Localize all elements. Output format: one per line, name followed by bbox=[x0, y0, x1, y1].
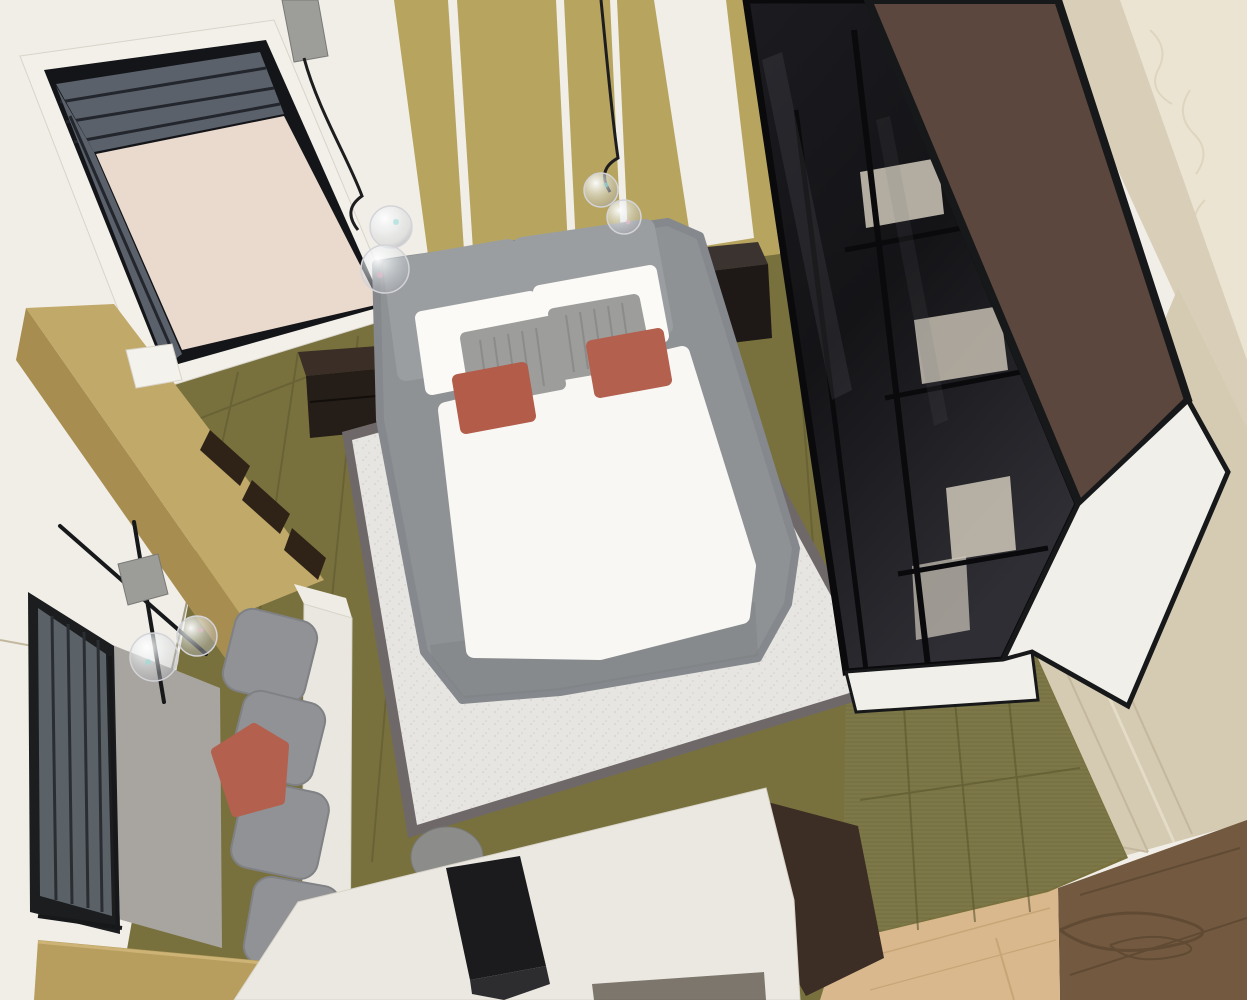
pendant-left-speck-cyan bbox=[393, 219, 399, 225]
wall-lamp-bubble-2 bbox=[177, 616, 217, 656]
pendant-right-speck-pink bbox=[626, 220, 631, 225]
pendant-left-bubble-1 bbox=[370, 206, 412, 248]
pendant-right-bubble-1 bbox=[584, 173, 618, 207]
pendant-right-speck-cyan bbox=[604, 183, 609, 188]
photo-canvas: Top-down photograph of a miniature moder… bbox=[0, 0, 1247, 1000]
scene-svg bbox=[0, 0, 1247, 1000]
lamp-bubble-speck-pink bbox=[199, 628, 204, 633]
pendant-left-bubble-2 bbox=[361, 245, 409, 293]
pendant-right-bubble-2 bbox=[607, 200, 641, 234]
wall-lamp-bubble-1 bbox=[130, 633, 178, 681]
lamp-bubble-speck-cyan bbox=[145, 659, 151, 665]
terracotta-pillow-right bbox=[592, 334, 666, 392]
shelf-white-tray bbox=[126, 344, 182, 388]
pendant-left-speck-pink bbox=[377, 272, 383, 278]
terracotta-pillow-left bbox=[458, 368, 530, 428]
